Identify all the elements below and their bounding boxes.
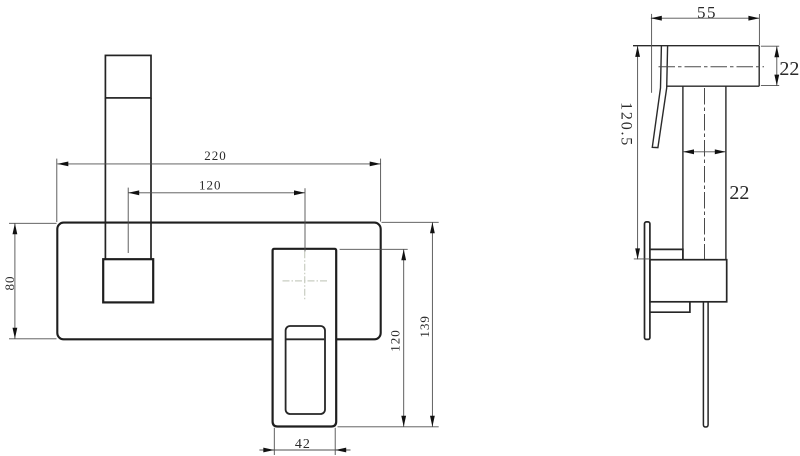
svg-text:220: 220 — [204, 148, 227, 163]
svg-text:55: 55 — [697, 3, 717, 22]
svg-text:80: 80 — [2, 276, 17, 291]
svg-text:120: 120 — [199, 177, 222, 192]
svg-text:120.5: 120.5 — [618, 102, 635, 147]
svg-text:139: 139 — [417, 315, 432, 338]
svg-text:22: 22 — [729, 182, 749, 204]
svg-text:42: 42 — [295, 437, 311, 452]
svg-text:22: 22 — [779, 58, 799, 80]
svg-text:120: 120 — [387, 329, 402, 352]
